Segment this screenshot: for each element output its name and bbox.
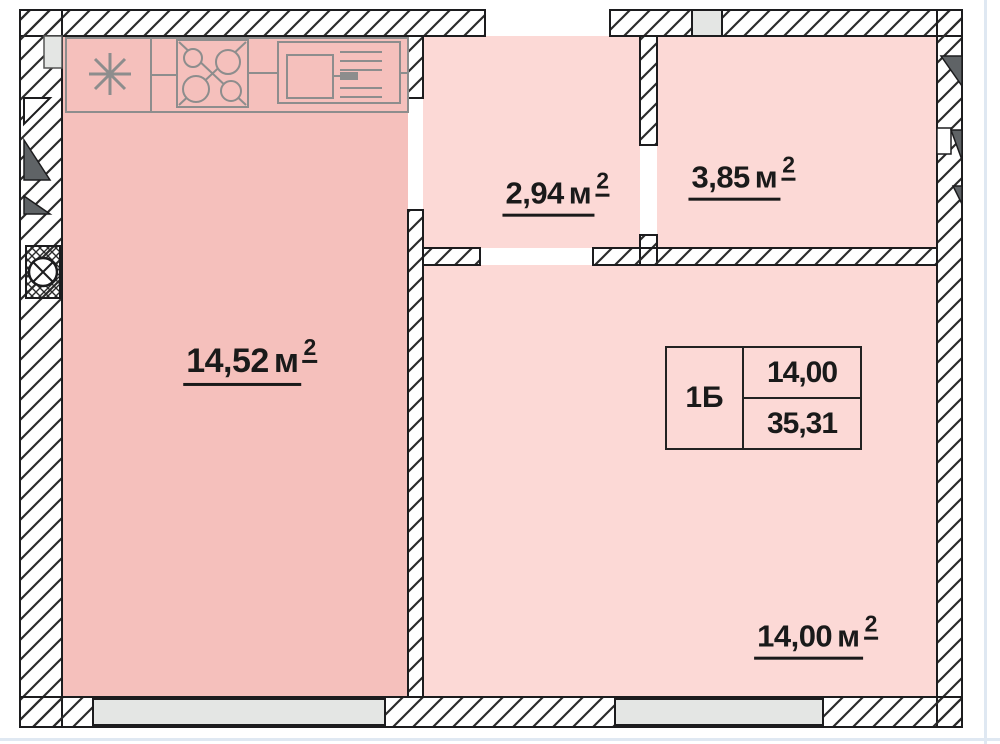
- wall-hall-living-right: [593, 248, 937, 265]
- corner-shaft: [44, 36, 62, 68]
- bathroom-area-value: 3,85: [691, 160, 749, 195]
- wall-niche: [937, 128, 951, 154]
- unit-value-top: 14,00: [744, 348, 860, 399]
- wall-right: [937, 10, 962, 727]
- bathroom-area-label: 3,85м2: [688, 160, 795, 201]
- unit-type-cell: 1Б: [667, 348, 744, 448]
- unit-info-table: 1Б 14,00 35,31: [665, 346, 862, 450]
- hallway-area-unit: м: [569, 176, 591, 211]
- wall-top-left: [20, 10, 485, 36]
- column-icon: [26, 246, 60, 298]
- floor-plan-page: 14,52м2 2,94м2 3,85м2 14,00м2 1Б 14,00 3…: [0, 0, 1000, 744]
- living-area-unit: м: [837, 619, 859, 654]
- kitchen-area-unit: м: [274, 342, 299, 380]
- living-area-label: 14,00м2: [754, 619, 878, 660]
- living-area-value: 14,00: [757, 619, 832, 654]
- bathroom-floor: [657, 36, 937, 248]
- unit-value-bottom: 35,31: [744, 399, 860, 448]
- wall-top-right: [610, 10, 962, 36]
- page-edge-bottom: [0, 738, 1000, 741]
- unit-values: 14,00 35,31: [744, 348, 860, 448]
- hallway-area-sup: 2: [595, 170, 609, 197]
- wall-kitchen-living: [408, 210, 423, 697]
- kitchen-window: [93, 699, 385, 725]
- kitchen-area-label: 14,52м2: [183, 342, 317, 386]
- kitchen-area-value: 14,52: [186, 342, 269, 380]
- hallway-area-value: 2,94: [505, 176, 563, 211]
- kitchen-star-icon: [89, 53, 131, 95]
- wall-hall-bath-top: [640, 36, 657, 145]
- hallway-area-label: 2,94м2: [502, 176, 609, 217]
- living-area-sup: 2: [864, 613, 878, 640]
- top-shaft: [692, 10, 722, 36]
- wall-kitchen-hall-top: [408, 36, 423, 98]
- living-window: [615, 699, 823, 725]
- wall-hall-living-left: [423, 248, 480, 265]
- bathroom-area-sup: 2: [781, 154, 795, 181]
- kitchen-area-sup: 2: [302, 336, 316, 363]
- page-edge-right: [984, 0, 987, 744]
- bathroom-area-unit: м: [755, 160, 777, 195]
